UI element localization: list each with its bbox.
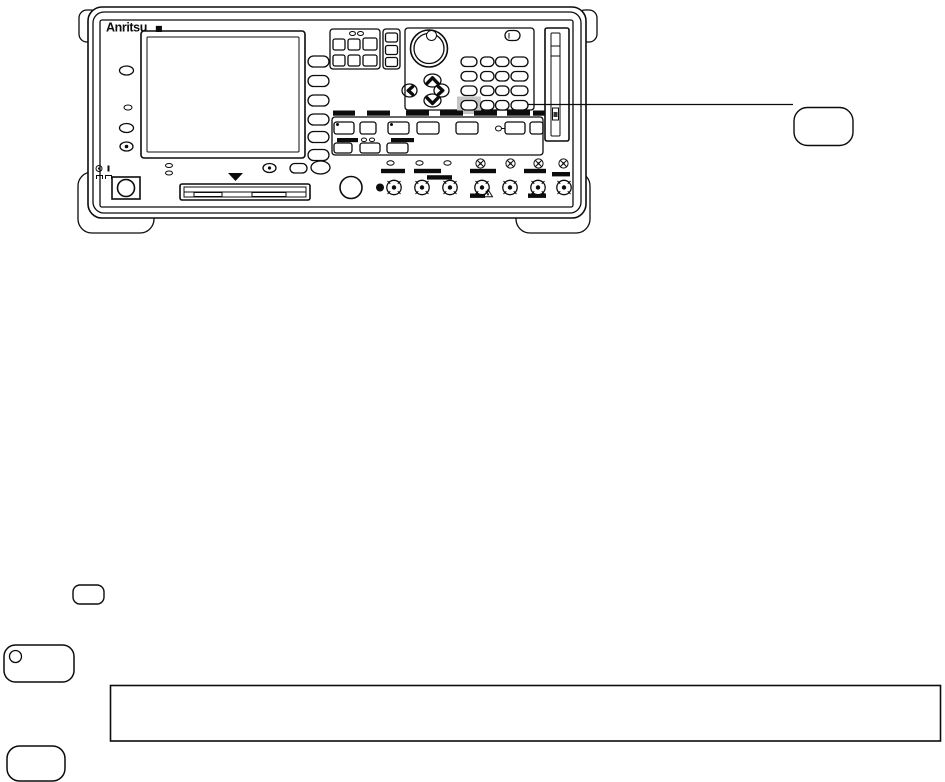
keypad-key (511, 72, 528, 82)
panel-label-bar (406, 111, 429, 116)
panel-label-bar (440, 111, 463, 116)
key-label-bar (391, 138, 414, 142)
panel-label-bar (474, 111, 497, 116)
keypad-key-highlighted (461, 101, 477, 111)
softkey (308, 132, 329, 143)
keypad-key (481, 101, 495, 111)
callout-key (794, 108, 853, 146)
rotary-knob-dimple (427, 31, 437, 41)
key-led-indicator (10, 651, 22, 663)
softkey (308, 150, 329, 161)
contrast-knob-dot (125, 145, 129, 149)
connector-label-bar (552, 172, 570, 176)
keypad-key (496, 57, 510, 67)
softkey (308, 56, 329, 67)
softkey (308, 95, 329, 106)
keypad-key (461, 57, 477, 67)
connector-label-bar (524, 169, 546, 173)
keypad-key (496, 101, 510, 111)
panel-label-bar (367, 111, 390, 116)
panel-label-bar (333, 111, 355, 116)
keypad-key (511, 57, 528, 67)
keypad-key (481, 72, 495, 82)
keypad-key (461, 72, 477, 82)
connector-label-bar (427, 175, 452, 179)
note-box (111, 686, 941, 742)
softkey (308, 114, 329, 125)
footer-key-with-led (4, 645, 74, 682)
key-label-bar (337, 138, 358, 142)
keypad-key (496, 86, 510, 96)
instrument-illustration: Anritsu ■ (0, 0, 945, 782)
footer-key-small (73, 585, 104, 604)
keypad-key (511, 101, 528, 111)
keypad-key (461, 86, 477, 96)
panel-label-bar (533, 111, 545, 116)
keypad-key (511, 86, 528, 96)
eject-button-mark (554, 112, 558, 117)
keypad-key (481, 86, 495, 96)
manual-page: Anritsu ■ (0, 0, 945, 782)
footer-key-bottom (7, 746, 65, 781)
keypad-key (496, 72, 510, 82)
softkey (308, 76, 329, 87)
connector-label-bar (470, 169, 496, 173)
panel-label-bar (507, 111, 530, 116)
small-jack (376, 184, 384, 192)
connector-label-bar (381, 169, 405, 173)
keypad-key (481, 57, 495, 67)
connector-label-bar (414, 169, 441, 173)
